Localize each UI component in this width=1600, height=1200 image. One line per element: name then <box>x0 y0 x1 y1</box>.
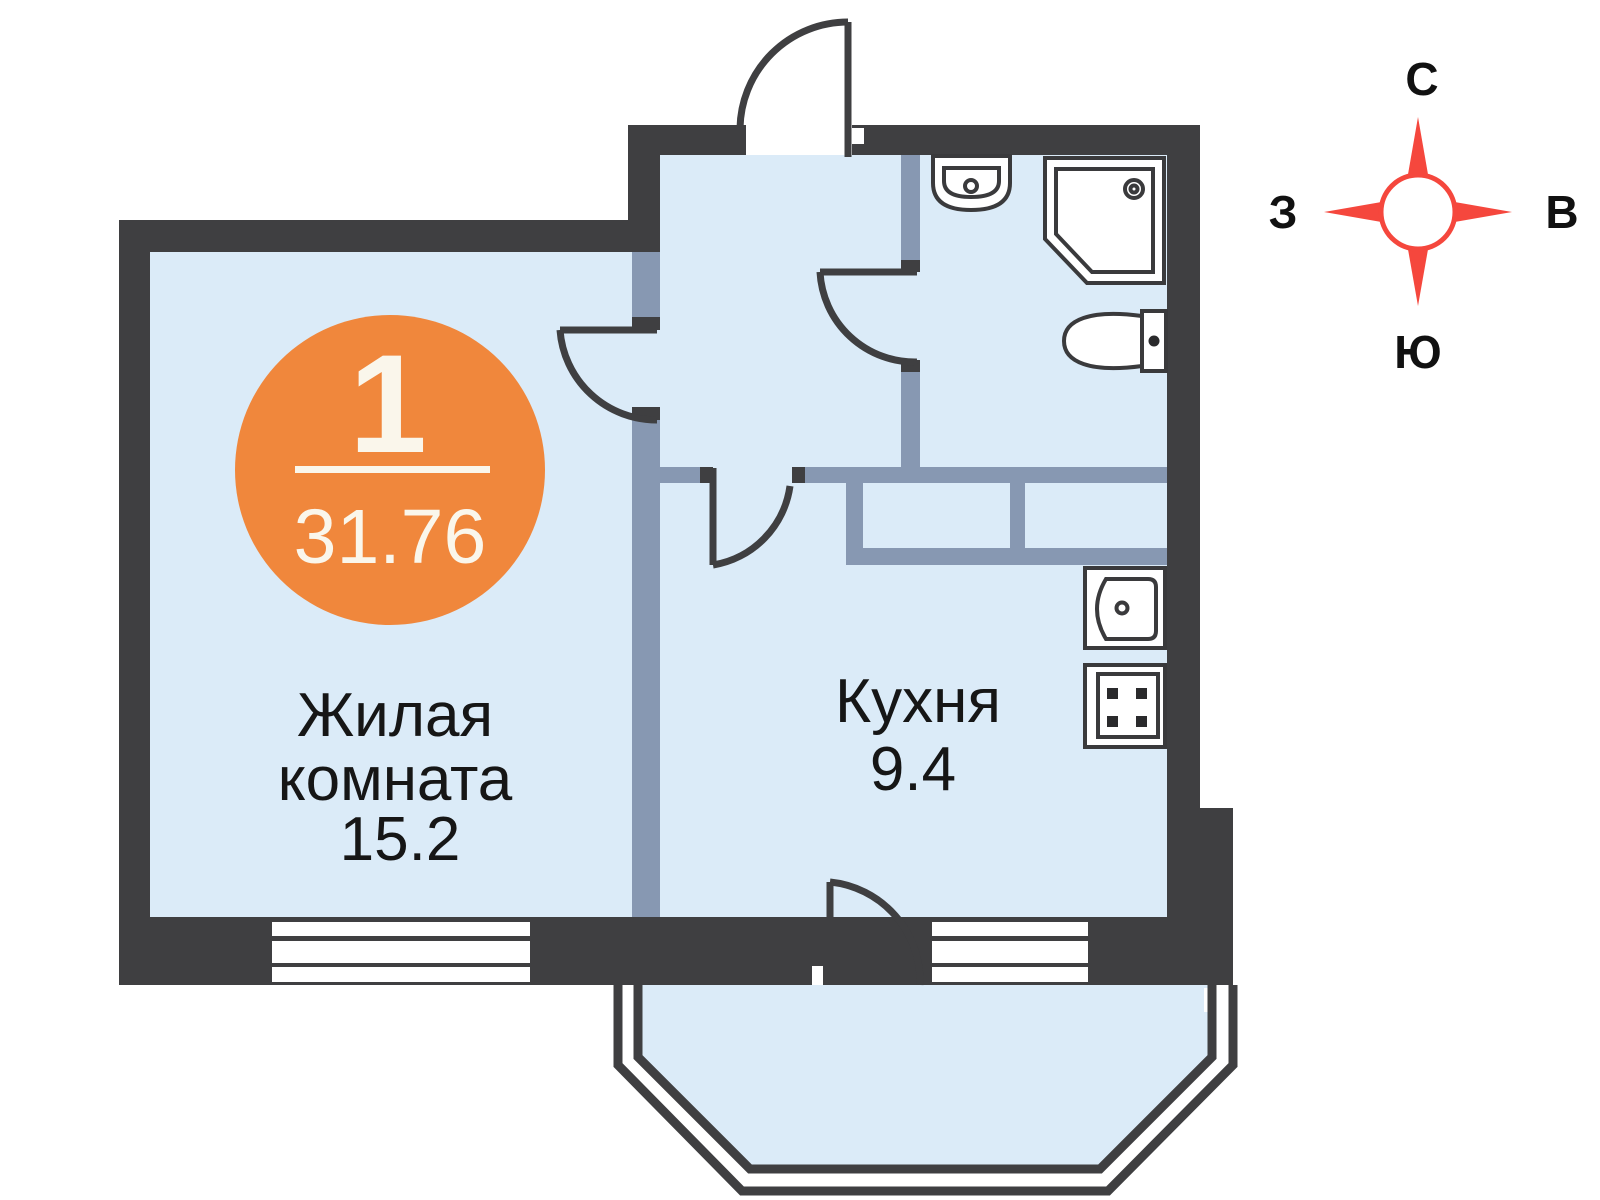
compass-north-label: С <box>1405 53 1438 105</box>
floor-plan: 1 31.76 Жилая комната 15.2 Кухня 9.4 С З… <box>0 0 1600 1200</box>
hall-bathroom-wall-upper <box>901 155 920 260</box>
stove-icon <box>1085 665 1165 747</box>
hall-kitchen-wall-left <box>660 467 700 483</box>
kitchen-sink-icon <box>1085 568 1165 648</box>
hall-kitchen-wall-right <box>792 467 1167 483</box>
entrance-door <box>740 22 848 157</box>
compass-east-label: В <box>1545 186 1578 238</box>
balcony-door-jamb-notch <box>812 966 823 985</box>
living-room-label-line2: комната <box>278 745 513 814</box>
living-room-label-line1: Жилая <box>297 681 493 750</box>
compass: С З В Ю <box>1269 53 1579 378</box>
kitchen-window <box>932 922 1088 982</box>
room-fills <box>150 155 1212 1169</box>
badge-divider <box>295 466 490 473</box>
living-room-area: 15.2 <box>340 805 461 874</box>
compass-south-label: Ю <box>1394 326 1441 378</box>
entrance-jamb-notch <box>852 128 864 144</box>
total-area: 31.76 <box>294 494 487 580</box>
kitchen-door-jamb-right <box>792 467 805 483</box>
top-wall-right-of-entrance <box>852 125 1200 155</box>
compass-center-circle <box>1381 175 1455 249</box>
left-outer-wall <box>119 220 150 985</box>
right-outer-wall-upper <box>1167 125 1200 808</box>
hall-bathroom-wall-lower <box>901 372 920 483</box>
kitchen-label: Кухня <box>835 667 1001 736</box>
compass-star-icon <box>1324 117 1512 306</box>
living-room-top-wall <box>119 220 660 252</box>
living-hall-wall-upper <box>632 252 660 317</box>
washbasin-icon <box>933 156 1010 210</box>
toilet-icon <box>1064 311 1166 371</box>
living-kitchen-wall <box>632 420 660 917</box>
room-count: 1 <box>349 325 427 482</box>
living-room-window <box>272 922 530 982</box>
floor-plan-page: 1 31.76 Жилая комната 15.2 Кухня 9.4 С З… <box>0 0 1600 1200</box>
compass-west-label: З <box>1269 186 1298 238</box>
area-badge: 1 31.76 <box>235 315 545 625</box>
kitchen-area: 9.4 <box>870 735 956 804</box>
closet-wall-bottom <box>846 548 1167 565</box>
